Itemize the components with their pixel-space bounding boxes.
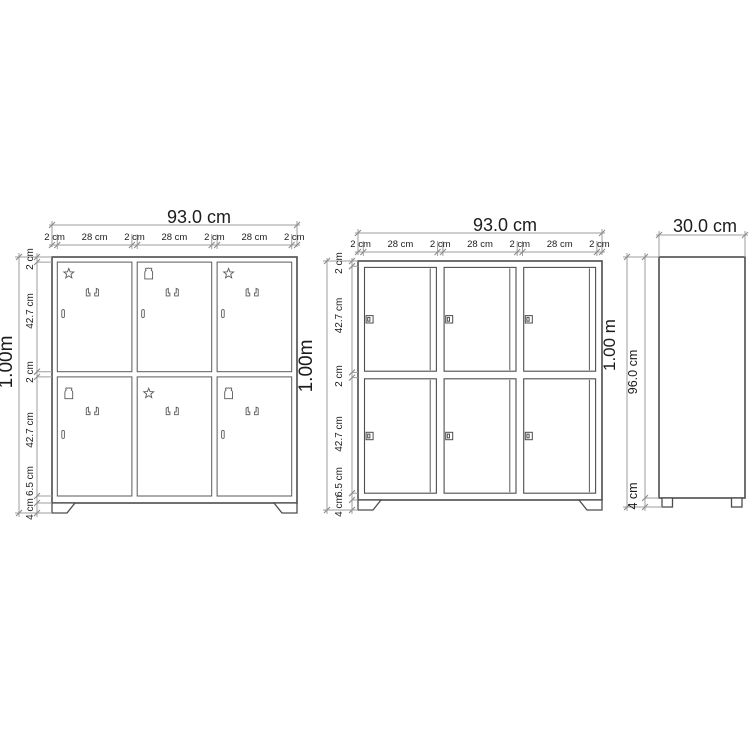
door-handle-icon <box>525 316 532 323</box>
locker-doors <box>365 267 596 493</box>
locker-door <box>365 379 437 493</box>
width-dimension-label: 30.0 cm <box>673 216 737 236</box>
segment-dimension-label: 2 cm <box>124 232 145 243</box>
compartment-opening <box>137 377 212 496</box>
crown-icon <box>225 388 233 399</box>
door-handle-icon <box>525 432 532 439</box>
height-dimension-label: 1.00 m <box>600 319 619 371</box>
door-handle-icon <box>446 316 453 323</box>
figure-side-view: 30.0 cm 1.00 m 96.0 cm 4 cm <box>600 216 748 511</box>
star-icon <box>224 268 234 277</box>
door-panel <box>365 267 437 371</box>
segment-dimension-label: 28 cm <box>387 239 413 250</box>
segment-dimension-label: 2 cm <box>510 239 531 250</box>
compartment-contents <box>62 268 258 438</box>
locker-door <box>524 267 596 371</box>
cabinet-foot <box>274 503 297 513</box>
figure-front-open: 93.0 cm 2 cm 28 cm 2 cm 28 cm 2 cm 28 cm… <box>0 207 305 520</box>
segment-dimension-label: 2 cm <box>430 239 451 250</box>
coat-hook-icon <box>175 407 179 415</box>
segment-dimension-label: 2 cm <box>204 232 225 243</box>
compartment-opening <box>217 262 292 372</box>
coat-hook-icon <box>246 288 250 296</box>
side-segment-label: 2 cm <box>334 252 345 274</box>
door-handle-icon <box>366 316 373 323</box>
side-segment-label: 6.5 cm <box>334 467 345 497</box>
side-segment-label: 6.5 cm <box>25 466 36 496</box>
coat-hook-icon <box>86 407 90 415</box>
compartment-opening <box>217 377 292 496</box>
door-handle-icon <box>446 432 453 439</box>
dimension-ticks <box>624 232 748 510</box>
coat-hook-icon <box>166 288 170 296</box>
width-dimension-label: 93.0 cm <box>473 215 537 235</box>
segment-dimension-label: 28 cm <box>82 232 108 243</box>
dimension-ticks <box>16 222 300 516</box>
figure-front-doors: 93.0 cm 2 cm 28 cm 2 cm 28 cm 2 cm 28 cm… <box>296 215 610 517</box>
side-segment-label: 4 cm <box>334 495 345 517</box>
side-segment-label: 42.7 cm <box>25 412 36 448</box>
crown-icon <box>145 268 153 279</box>
coat-hook-icon <box>246 407 250 415</box>
side-segment-label: 42.7 cm <box>334 298 345 334</box>
wall-hook-icon <box>222 430 225 438</box>
compartment-opening <box>57 262 132 372</box>
side-segment-label: 96.0 cm <box>626 350 640 394</box>
side-segment-label: 2 cm <box>25 248 36 270</box>
segment-dimension-label: 2 cm <box>284 232 305 243</box>
coat-hook-icon <box>175 288 179 296</box>
wall-hook-icon <box>62 430 65 438</box>
height-dimension-label: 1.00m <box>0 336 17 389</box>
segment-dimension-label: 28 cm <box>241 232 267 243</box>
star-icon <box>64 268 74 277</box>
cabinet-body-outline <box>358 261 602 500</box>
door-panel <box>444 267 516 371</box>
side-segment-label: 4 cm <box>25 498 36 520</box>
side-segment-label: 2 cm <box>25 361 36 383</box>
coat-hook-icon <box>255 288 259 296</box>
cabinet-dimension-drawing: 93.0 cm 2 cm 28 cm 2 cm 28 cm 2 cm 28 cm… <box>0 0 750 750</box>
coat-hook-icon <box>95 407 99 415</box>
door-panel <box>365 379 437 493</box>
segment-dimension-label: 2 cm <box>44 232 65 243</box>
crown-icon <box>65 388 73 399</box>
door-handle-icon <box>366 432 373 439</box>
cabinet-foot <box>52 503 75 513</box>
wall-hook-icon <box>142 310 145 318</box>
locker-door <box>524 379 596 493</box>
cabinet-foot <box>732 498 743 507</box>
cabinet-foot <box>662 498 673 507</box>
star-icon <box>144 388 154 397</box>
coat-hook-icon <box>166 407 170 415</box>
side-segment-label: 42.7 cm <box>25 293 36 329</box>
segment-dimension-label: 28 cm <box>467 239 493 250</box>
door-panel <box>524 379 596 493</box>
coat-hook-icon <box>86 288 90 296</box>
side-segment-label: 42.7 cm <box>334 416 345 452</box>
segment-dimension-label: 28 cm <box>547 239 573 250</box>
width-dimension-label: 93.0 cm <box>167 207 231 227</box>
compartment-opening <box>57 377 132 496</box>
wall-hook-icon <box>222 310 225 318</box>
door-panel <box>444 379 516 493</box>
locker-door <box>444 267 516 371</box>
locker-door <box>444 379 516 493</box>
wall-hook-icon <box>62 310 65 318</box>
segment-dimension-label: 2 cm <box>350 239 371 250</box>
coat-hook-icon <box>255 407 259 415</box>
height-dimension-label: 1.00m <box>296 340 317 393</box>
segment-dimension-label: 2 cm <box>589 239 610 250</box>
cabinet-side-outline <box>659 257 745 498</box>
cabinet-foot <box>358 500 381 510</box>
side-segment-label: 4 cm <box>626 482 640 509</box>
dimension-lines <box>623 231 748 511</box>
side-segment-label: 2 cm <box>334 365 345 387</box>
locker-door <box>365 267 437 371</box>
segment-dimension-label: 28 cm <box>161 232 187 243</box>
door-panel <box>524 267 596 371</box>
coat-hook-icon <box>95 288 99 296</box>
cabinet-foot <box>579 500 602 510</box>
